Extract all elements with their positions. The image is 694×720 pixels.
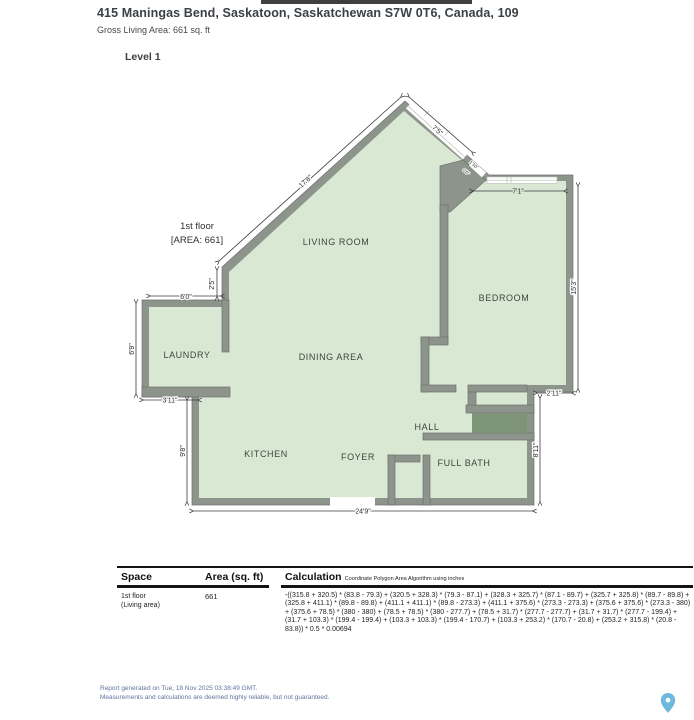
floorplan-report-page: 415 Maningas Bend, Saskatoon, Saskatchew… [0, 0, 694, 720]
room-hall: HALL [415, 422, 440, 432]
dim-bottom: 24'9" [355, 509, 371, 516]
col-header-calc-label: Calculation [285, 571, 342, 583]
cell-space-line2: (Living area) [121, 601, 205, 610]
table-row: 1st floor (Living area) 661 -((315.8 + 3… [117, 588, 693, 635]
room-foyer: FOYER [341, 452, 375, 462]
table-rule-mid [117, 585, 693, 588]
room-dining: DINING AREA [299, 352, 364, 362]
area-table: Space Area (sq. ft) CalculationCoordinat… [117, 566, 693, 635]
cell-calculation: -((315.8 + 320.5) * (83.8 - 79.3) + (320… [285, 592, 693, 635]
dim-laundry-bottom: 3'11" [163, 398, 178, 405]
table-header-row: Space Area (sq. ft) CalculationCoordinat… [117, 568, 693, 585]
floor-annotation: 1st floor [AREA: 661] [171, 221, 223, 246]
dim-kitchen-left: 9'8" [180, 445, 187, 457]
dim-bedroom-right: 15'3" [571, 279, 578, 295]
room-living: LIVING ROOM [303, 237, 370, 247]
dim-waist: 2'5" [209, 278, 216, 290]
floor-label-line2: [AREA: 661] [171, 235, 223, 246]
generated-timestamp: Report generated on Tue, 18 Nov 2025 03:… [100, 684, 329, 693]
calc-note: Coordinate Polygon Area Algorithm using … [345, 576, 465, 582]
dim-step-right: 2'11" [547, 391, 562, 398]
cell-space: 1st floor (Living area) [121, 592, 205, 635]
report-footer: Report generated on Tue, 18 Nov 2025 03:… [100, 684, 329, 702]
room-laundry: LAUNDRY [163, 350, 210, 360]
room-bedroom: BEDROOM [479, 293, 530, 303]
dim-bath-right: 8'11" [533, 442, 540, 457]
cell-area: 661 [205, 592, 285, 635]
entry-door-gap [330, 497, 375, 506]
col-header-area: Area (sq. ft) [205, 571, 285, 583]
dim-bedroom-top: 7'1" [512, 189, 524, 196]
room-kitchen: KITCHEN [244, 449, 288, 459]
cell-space-line1: 1st floor [121, 592, 205, 601]
floor-label-line1: 1st floor [180, 221, 214, 232]
disclaimer-text: Measurements and calculations are deemed… [100, 693, 329, 702]
col-header-space: Space [121, 571, 205, 583]
dim-laundry-left: 6'9" [129, 343, 136, 355]
room-bath: FULL BATH [438, 458, 491, 468]
col-header-calculation: CalculationCoordinate Polygon Area Algor… [285, 571, 693, 583]
map-pin-icon[interactable] [661, 693, 675, 713]
dim-laundry-top: 6'0" [180, 294, 192, 301]
closet-area [472, 413, 527, 433]
